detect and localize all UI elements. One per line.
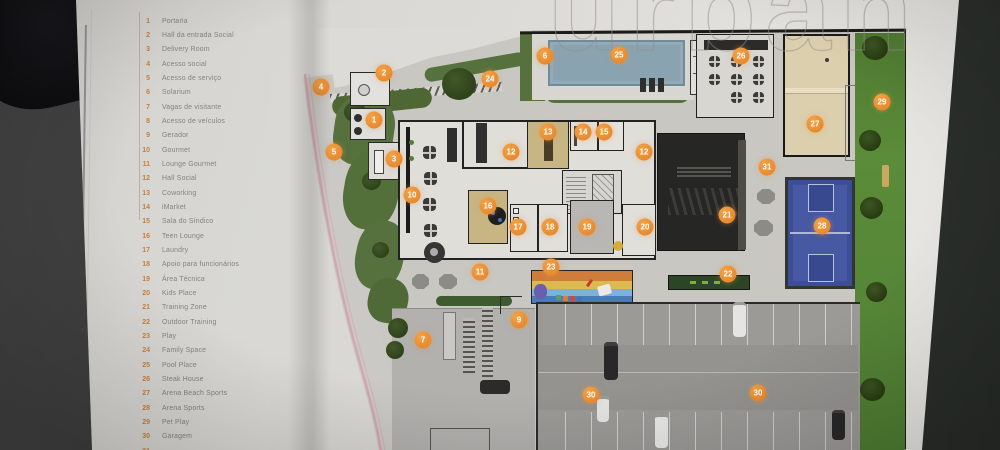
- plan-marker-number: 31: [763, 163, 772, 172]
- plan-marker: 17: [510, 219, 527, 236]
- training-roof-edge: [738, 140, 746, 251]
- plan-marker-number: 21: [723, 211, 732, 220]
- vent-shaft: [443, 312, 456, 360]
- plan-marker: 25: [611, 47, 628, 64]
- gourmet-table: [424, 172, 437, 185]
- site-plan: urban: [0, 0, 1000, 450]
- court-goal-box: [808, 254, 834, 282]
- plan-marker: 10: [404, 187, 421, 204]
- outdoor-equipment: [714, 281, 720, 284]
- plan-marker-number: 30: [754, 389, 763, 398]
- court-goal-box: [808, 184, 834, 212]
- plan-marker: 12: [636, 144, 653, 161]
- plan-marker: 13: [540, 124, 557, 141]
- plan-marker-number: 12: [507, 148, 516, 157]
- grass-tree: [859, 130, 881, 151]
- plan-marker-number: 15: [600, 128, 609, 137]
- plan-marker: 15: [596, 124, 613, 141]
- kitchen-block: [476, 123, 487, 163]
- plan-marker-number: 7: [421, 336, 425, 345]
- plan-marker-number: 30: [587, 391, 596, 400]
- garage-outline: [430, 428, 490, 450]
- plan-marker: 20: [637, 219, 654, 236]
- plan-marker: 11: [472, 264, 489, 281]
- plan-marker: 24: [482, 71, 499, 88]
- plan-marker: 21: [719, 207, 736, 224]
- watermark-text: urban: [548, 0, 921, 78]
- plan-marker-number: 22: [724, 270, 733, 279]
- plan-marker: 2: [376, 65, 393, 82]
- kids-toy-block: [563, 296, 568, 301]
- plan-marker-number: 28: [818, 222, 827, 231]
- gourmet-table: [423, 146, 436, 159]
- wall-line: [462, 120, 464, 168]
- plan-marker: 14: [575, 124, 592, 141]
- plan-marker-number: 12: [640, 148, 649, 157]
- gourmet-table: [423, 198, 436, 211]
- plan-marker: 23: [543, 259, 560, 276]
- plan-marker-number: 5: [332, 148, 336, 157]
- plan-marker-number: 17: [514, 223, 523, 232]
- kids-toy-block: [570, 296, 575, 301]
- plan-marker-number: 16: [484, 202, 493, 211]
- family-space-tree: [442, 68, 476, 100]
- gourmet-table: [424, 224, 437, 237]
- grass-tree: [860, 197, 883, 219]
- car-dark: [604, 342, 618, 380]
- garage-tree: [386, 341, 404, 359]
- outdoor-training-strip: [668, 275, 750, 290]
- entrance-round-feature: [358, 84, 370, 96]
- car-white: [655, 414, 668, 448]
- plan-marker-number: 10: [408, 191, 417, 200]
- grass-tree: [860, 378, 885, 401]
- plan-marker-number: 3: [392, 155, 396, 164]
- plant: [409, 140, 414, 145]
- plan-marker: 4: [313, 79, 330, 96]
- plan-marker: 6: [537, 48, 554, 65]
- stair-strip: [482, 308, 493, 377]
- plan-marker-number: 1: [372, 116, 376, 125]
- garage-tree: [388, 318, 408, 338]
- plan-marker: 27: [807, 116, 824, 133]
- plan-marker: 30: [750, 385, 767, 402]
- car-dark: [480, 380, 510, 394]
- dining-table: [753, 92, 764, 103]
- book-page: 1 Portaria 2 Hall da entrada Social 3 De…: [0, 0, 1000, 450]
- plan-marker: 16: [480, 198, 497, 215]
- plan-marker-number: 6: [543, 52, 547, 61]
- delivery-room-counter: [374, 150, 384, 174]
- stair-strip: [463, 318, 475, 373]
- plan-marker-number: 18: [546, 223, 555, 232]
- outdoor-equipment: [702, 281, 708, 284]
- paver-planter: [757, 189, 775, 204]
- plan-marker: 12: [503, 144, 520, 161]
- plan-marker: 22: [720, 266, 737, 283]
- plan-marker: 3: [386, 151, 403, 168]
- plan-marker: 26: [733, 48, 750, 65]
- dining-table: [731, 92, 742, 103]
- plan-marker-number: 4: [319, 83, 323, 92]
- plan-marker: 18: [542, 219, 559, 236]
- pool-lounger: [640, 78, 646, 92]
- plan-marker-number: 26: [737, 52, 746, 61]
- kids-toy-block: [556, 295, 561, 300]
- plan-marker-number: 14: [579, 128, 588, 137]
- plant: [409, 156, 414, 161]
- plan-marker: 7: [415, 332, 432, 349]
- sand-court-net-line: [785, 88, 848, 93]
- portaria-desk-dot: [354, 127, 362, 135]
- parking-stall-lines-bottom: [540, 412, 858, 450]
- pool-table-dot: [498, 218, 502, 222]
- car-white: [733, 302, 746, 337]
- plan-marker-number: 9: [517, 316, 521, 325]
- plan-marker-number: 25: [615, 51, 624, 60]
- plan-marker-number: 24: [486, 75, 495, 84]
- training-roof-louvers: [677, 166, 731, 177]
- portaria-desk-dot: [354, 114, 362, 122]
- plan-marker-number: 11: [476, 268, 484, 277]
- plan-marker-number: 27: [811, 120, 820, 129]
- plan-marker: 28: [814, 218, 831, 235]
- plan-marker-number: 19: [583, 223, 592, 232]
- plan-marker: 9: [511, 312, 528, 329]
- paver-planter: [439, 274, 457, 289]
- plan-marker-number: 2: [382, 69, 386, 78]
- photo-of-brochure: 1 Portaria 2 Hall da entrada Social 3 De…: [0, 0, 1000, 450]
- plan-marker: 19: [579, 219, 596, 236]
- bench: [882, 165, 889, 187]
- car-dark: [832, 410, 845, 440]
- car-white: [597, 396, 609, 422]
- pool-lounger: [658, 78, 664, 92]
- plan-marker: 29: [874, 94, 891, 111]
- bar-counter: [447, 128, 457, 162]
- plan-marker-number: 29: [878, 98, 887, 107]
- plan-marker-number: 20: [641, 223, 650, 232]
- grass-tree: [866, 282, 887, 302]
- plan-marker: 30: [583, 387, 600, 404]
- plan-marker: 31: [759, 159, 776, 176]
- outdoor-equipment: [690, 281, 696, 284]
- washing-machine: [513, 208, 519, 214]
- round-sofa-center: [430, 248, 438, 256]
- tree: [372, 242, 389, 258]
- kids-play-blob: [534, 284, 547, 299]
- plan-marker-number: 23: [547, 263, 556, 272]
- kids-place-rug: [613, 241, 623, 251]
- pool-lounger: [649, 78, 655, 92]
- plan-marker: 1: [366, 112, 383, 129]
- plan-marker: 5: [326, 144, 343, 161]
- plan-marker-number: 13: [544, 128, 553, 137]
- parking-stall-lines-top: [540, 304, 858, 345]
